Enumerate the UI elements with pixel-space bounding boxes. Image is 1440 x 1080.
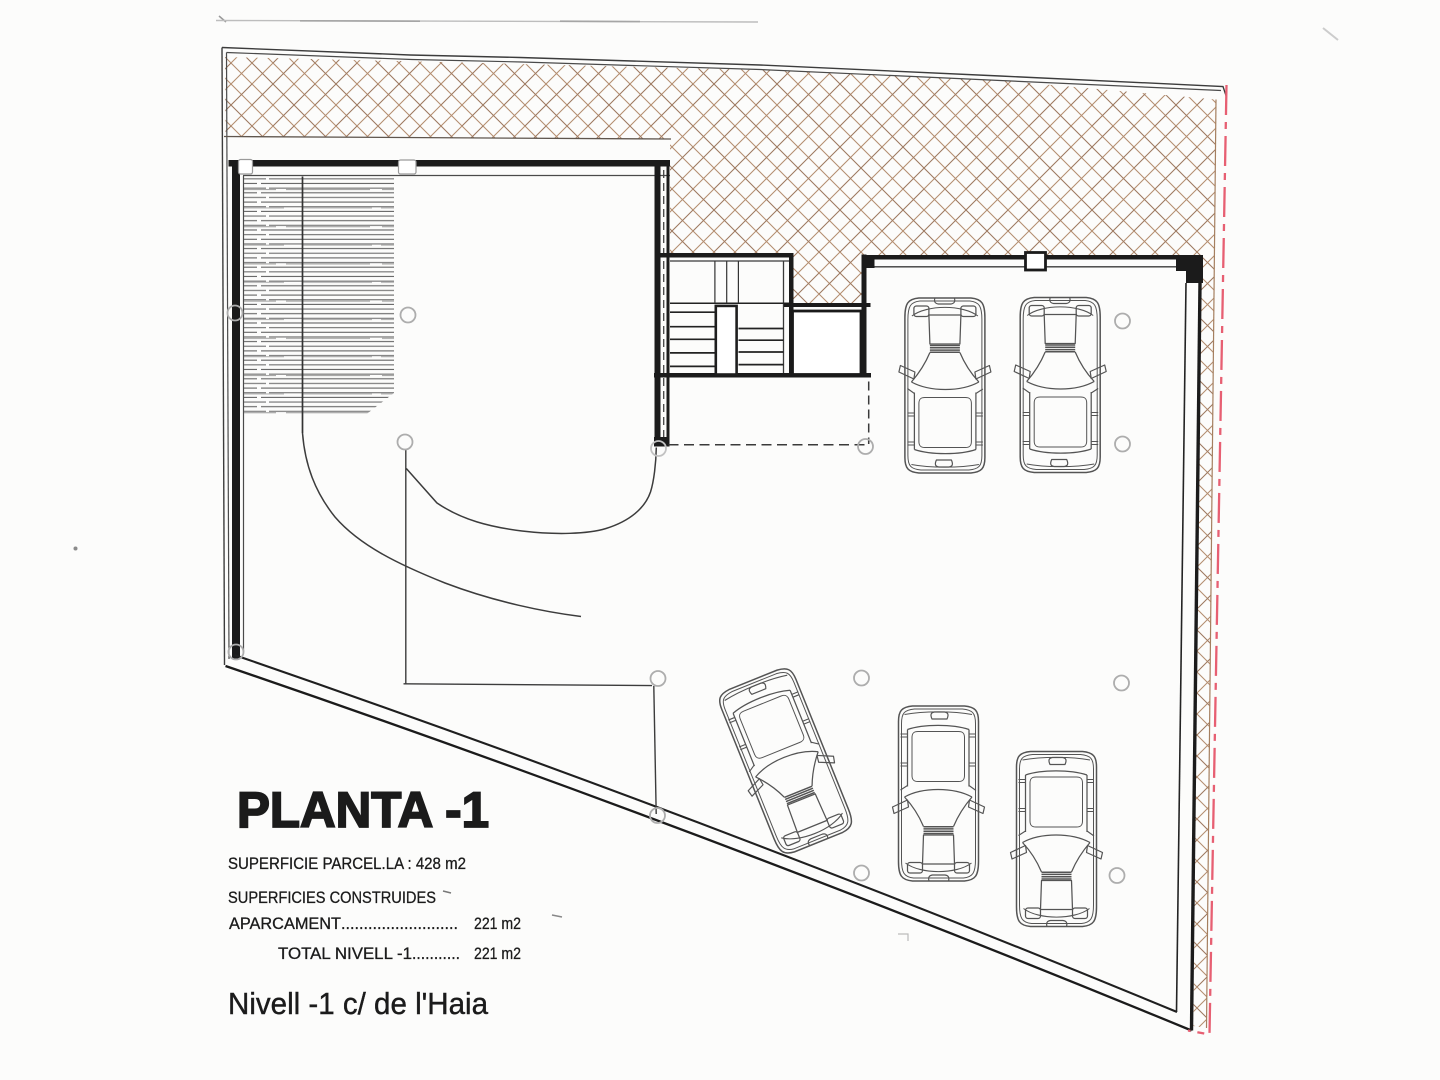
- svg-text:SUPERFICIE PARCEL.LA : 428 m2: SUPERFICIE PARCEL.LA : 428 m2: [228, 854, 466, 873]
- svg-text:SUPERFICIES CONSTRUIDES: SUPERFICIES CONSTRUIDES: [228, 888, 436, 907]
- svg-text:221 m2: 221 m2: [474, 915, 521, 933]
- svg-text:221 m2: 221 m2: [474, 945, 521, 963]
- svg-text:...........: ...........: [412, 945, 460, 963]
- svg-text:APARCAMENT: APARCAMENT: [229, 915, 341, 933]
- svg-text:TOTAL NIVELL -1: TOTAL NIVELL -1: [278, 945, 412, 963]
- svg-text:..........................: ..........................: [341, 915, 458, 933]
- svg-text:Nivell -1 c/ de l'Haia: Nivell -1 c/ de l'Haia: [228, 986, 489, 1021]
- svg-text:PLANTA -1: PLANTA -1: [237, 782, 489, 838]
